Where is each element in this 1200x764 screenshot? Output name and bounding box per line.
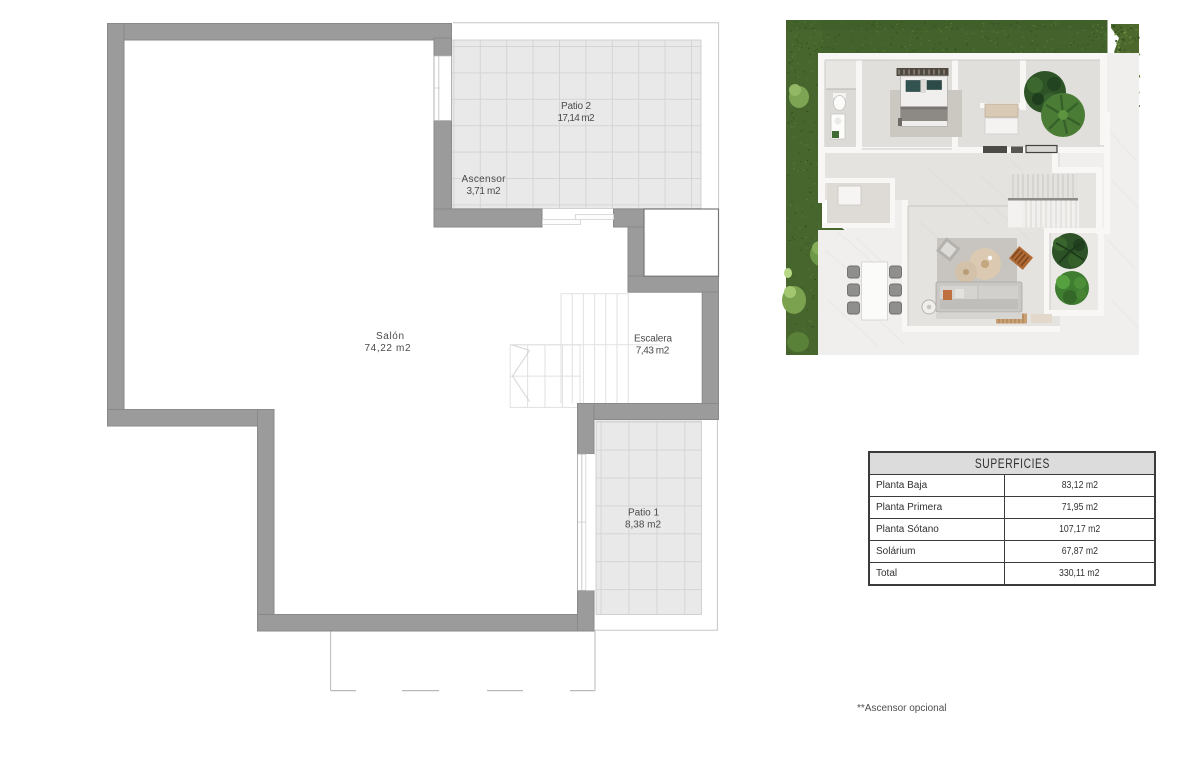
svg-text:Ascensor: Ascensor	[462, 174, 507, 185]
svg-text:17,14 m2: 17,14 m2	[558, 113, 595, 124]
svg-text:Patio 1: Patio 1	[628, 508, 659, 519]
svg-text:74,22 m2: 74,22 m2	[365, 343, 411, 354]
svg-text:3,71 m2: 3,71 m2	[467, 186, 501, 197]
svg-text:Escalera: Escalera	[634, 334, 672, 345]
svg-text:8,38 m2: 8,38 m2	[625, 520, 661, 531]
svg-text:7,43 m2: 7,43 m2	[636, 346, 670, 357]
svg-text:Patio 2: Patio 2	[561, 101, 591, 112]
svg-text:Salón: Salón	[376, 331, 404, 342]
